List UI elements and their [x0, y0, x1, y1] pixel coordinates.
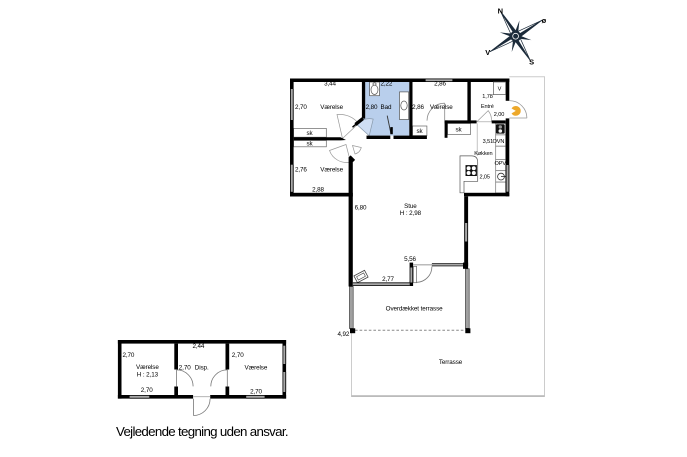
svg-text:2,70: 2,70 — [179, 364, 191, 371]
svg-text:OVN: OVN — [492, 139, 504, 145]
svg-text:ø: ø — [542, 16, 547, 25]
svg-text:6,80: 6,80 — [355, 204, 367, 211]
svg-text:Disp.: Disp. — [195, 364, 209, 371]
svg-text:2,86: 2,86 — [412, 104, 424, 111]
svg-text:Overdækket terrasse: Overdækket terrasse — [386, 305, 443, 312]
svg-text:Værelse: Værelse — [245, 364, 268, 371]
svg-text:5,56: 5,56 — [404, 256, 416, 263]
svg-text:H : 2,13: H : 2,13 — [137, 372, 159, 379]
svg-text:2,00: 2,00 — [494, 112, 505, 118]
svg-text:Værelse: Værelse — [136, 364, 159, 371]
svg-text:2,70: 2,70 — [232, 352, 244, 359]
svg-text:Stue: Stue — [404, 203, 417, 210]
svg-text:2,05: 2,05 — [479, 175, 490, 181]
svg-text:2,77: 2,77 — [382, 276, 394, 283]
svg-text:Vejledende tegning uden ansvar: Vejledende tegning uden ansvar. — [116, 424, 288, 439]
svg-text:sk: sk — [306, 130, 313, 137]
svg-text:N: N — [498, 6, 503, 15]
svg-text:H : 2,98: H : 2,98 — [400, 210, 422, 217]
svg-text:OPV: OPV — [495, 161, 507, 167]
svg-text:Terrasse: Terrasse — [439, 359, 463, 366]
svg-text:V: V — [485, 48, 490, 57]
svg-text:2,70: 2,70 — [295, 104, 307, 111]
svg-text:2,70: 2,70 — [122, 352, 134, 359]
svg-text:2,88: 2,88 — [312, 187, 324, 194]
svg-text:V: V — [498, 87, 502, 93]
svg-text:Værelse: Værelse — [320, 104, 343, 111]
svg-text:2,86: 2,86 — [434, 81, 446, 88]
svg-text:1,78: 1,78 — [482, 94, 493, 100]
svg-text:sk: sk — [306, 140, 313, 147]
svg-text:Værelse: Værelse — [320, 166, 343, 173]
svg-text:Entré: Entré — [481, 104, 494, 110]
svg-text:2,80: 2,80 — [366, 104, 378, 111]
svg-text:2,44: 2,44 — [192, 343, 204, 350]
svg-text:4,92: 4,92 — [337, 331, 349, 338]
svg-text:3,44: 3,44 — [324, 81, 336, 88]
svg-text:S: S — [529, 58, 534, 67]
svg-text:Køkken: Køkken — [474, 151, 492, 157]
svg-text:2,70: 2,70 — [250, 388, 262, 395]
svg-text:2,76: 2,76 — [295, 166, 307, 173]
svg-text:Værelse: Værelse — [430, 104, 453, 111]
svg-text:sk: sk — [455, 127, 462, 134]
svg-text:2,22: 2,22 — [380, 81, 392, 88]
svg-text:Bad: Bad — [381, 104, 393, 111]
svg-text:2,70: 2,70 — [141, 387, 153, 394]
svg-text:sk: sk — [416, 128, 423, 135]
